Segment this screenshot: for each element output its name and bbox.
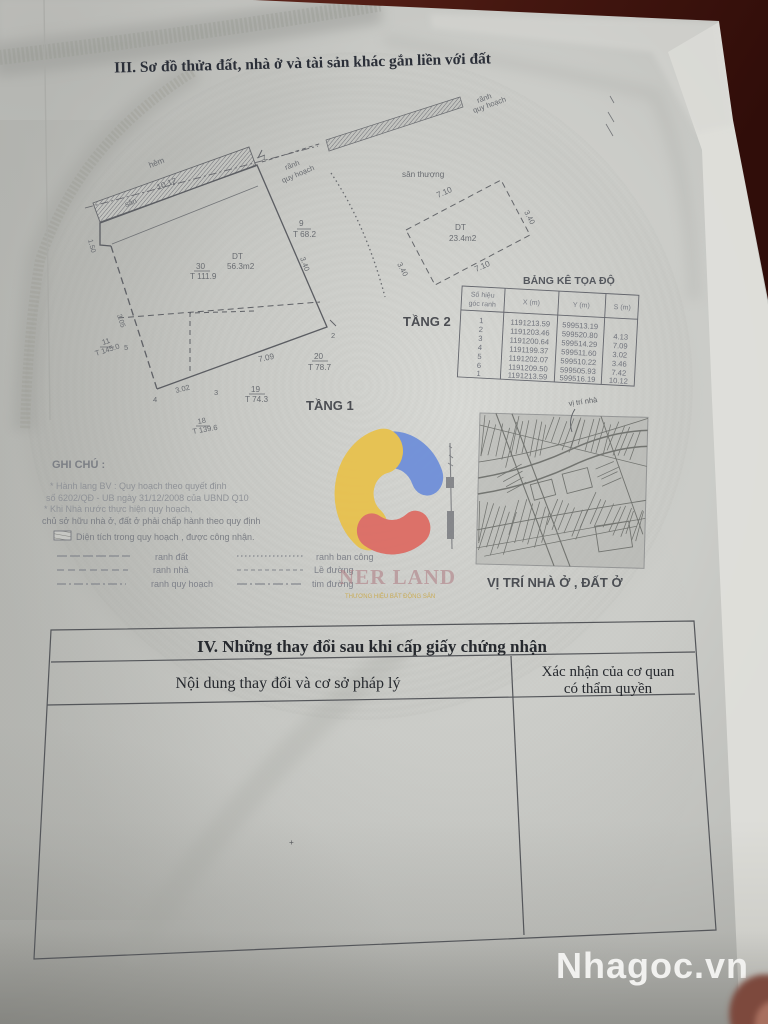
svg-text:+: + bbox=[289, 838, 294, 847]
svg-text:5: 5 bbox=[477, 352, 482, 361]
svg-text:4: 4 bbox=[478, 343, 483, 352]
svg-text:599516.19: 599516.19 bbox=[559, 373, 595, 384]
svg-text:S (m): S (m) bbox=[614, 304, 631, 312]
svg-text:5: 5 bbox=[124, 343, 128, 352]
svg-text:ranh đất: ranh đất bbox=[155, 552, 189, 562]
svg-text:* Khi Nhà nước thực hiện quy h: * Khi Nhà nước thực hiện quy hoạch, bbox=[44, 504, 193, 514]
svg-text:56.3m2: 56.3m2 bbox=[227, 262, 255, 271]
svg-text:10.12: 10.12 bbox=[609, 376, 628, 386]
svg-text:T 74.3: T 74.3 bbox=[245, 395, 269, 404]
svg-text:Nhagoc.vn: Nhagoc.vn bbox=[556, 945, 749, 986]
svg-text:T 78.7: T 78.7 bbox=[308, 363, 332, 372]
svg-text:3: 3 bbox=[478, 334, 483, 343]
svg-text:1: 1 bbox=[262, 153, 266, 162]
svg-text:T 68.2: T 68.2 bbox=[293, 230, 317, 239]
svg-text:GHI CHÚ :: GHI CHÚ : bbox=[52, 458, 105, 471]
svg-text:ranh quy hoạch: ranh quy hoạch bbox=[151, 579, 213, 589]
svg-text:Nội dung thay đổi và cơ sở phá: Nội dung thay đổi và cơ sở pháp lý bbox=[176, 675, 401, 692]
svg-text:THƯƠNG HIỆU BẤT ĐỘNG SẢN: THƯƠNG HIỆU BẤT ĐỘNG SẢN bbox=[345, 592, 435, 600]
svg-text:19: 19 bbox=[251, 385, 261, 394]
svg-text:2: 2 bbox=[331, 331, 335, 340]
svg-text:có thẩm quyền: có thẩm quyền bbox=[564, 681, 653, 697]
svg-text:DT: DT bbox=[455, 223, 466, 232]
svg-text:IV. Những thay đổi sau khi cấp: IV. Những thay đổi sau khi cấp giấy chứn… bbox=[197, 637, 547, 656]
svg-text:TẦNG 1: TẦNG 1 bbox=[306, 398, 354, 413]
svg-text:20: 20 bbox=[314, 352, 324, 361]
svg-text:T 111.9: T 111.9 bbox=[190, 272, 217, 281]
svg-text:góc ranh: góc ranh bbox=[468, 300, 496, 308]
svg-text:Xác nhận của cơ quan: Xác nhận của cơ quan bbox=[542, 664, 675, 680]
svg-text:VỊ TRÍ NHÀ Ở , ĐẤT Ở: VỊ TRÍ NHÀ Ở , ĐẤT Ở bbox=[487, 575, 623, 590]
svg-text:số 6202/QĐ - UB ngày 31/12/200: số 6202/QĐ - UB ngày 31/12/2008 của UBND… bbox=[46, 493, 249, 503]
svg-text:ranh nhà: ranh nhà bbox=[153, 565, 189, 575]
svg-text:NER LAND: NER LAND bbox=[339, 565, 456, 589]
svg-text:Diện tích trong quy hoạch , đư: Diện tích trong quy hoạch , được công nh… bbox=[76, 532, 255, 542]
svg-text:23.4m2: 23.4m2 bbox=[449, 234, 477, 243]
svg-text:TẦNG 2: TẦNG 2 bbox=[403, 314, 451, 329]
svg-text:sân thượng: sân thượng bbox=[402, 170, 445, 179]
svg-text:BẢNG KÊ TỌA ĐỘ: BẢNG KÊ TỌA ĐỘ bbox=[523, 274, 615, 287]
svg-text:1: 1 bbox=[479, 316, 484, 325]
svg-text:2: 2 bbox=[479, 325, 484, 334]
svg-text:chủ sở hữu nhà ở, đất ở phải c: chủ sở hữu nhà ở, đất ở phải chấp hành t… bbox=[42, 516, 260, 526]
svg-text:X (m): X (m) bbox=[523, 299, 540, 307]
svg-text:1: 1 bbox=[476, 369, 481, 378]
svg-text:ranh ban công: ranh ban công bbox=[316, 552, 374, 562]
svg-text:* Hành lang BV : Quy hoạch the: * Hành lang BV : Quy hoạch theo quyết đị… bbox=[50, 481, 227, 491]
svg-text:3: 3 bbox=[214, 388, 218, 397]
svg-text:DT: DT bbox=[232, 252, 243, 261]
svg-text:4: 4 bbox=[153, 395, 157, 404]
svg-text:Y (m): Y (m) bbox=[573, 302, 590, 310]
svg-text:30: 30 bbox=[196, 262, 206, 271]
svg-text:9: 9 bbox=[299, 219, 304, 228]
